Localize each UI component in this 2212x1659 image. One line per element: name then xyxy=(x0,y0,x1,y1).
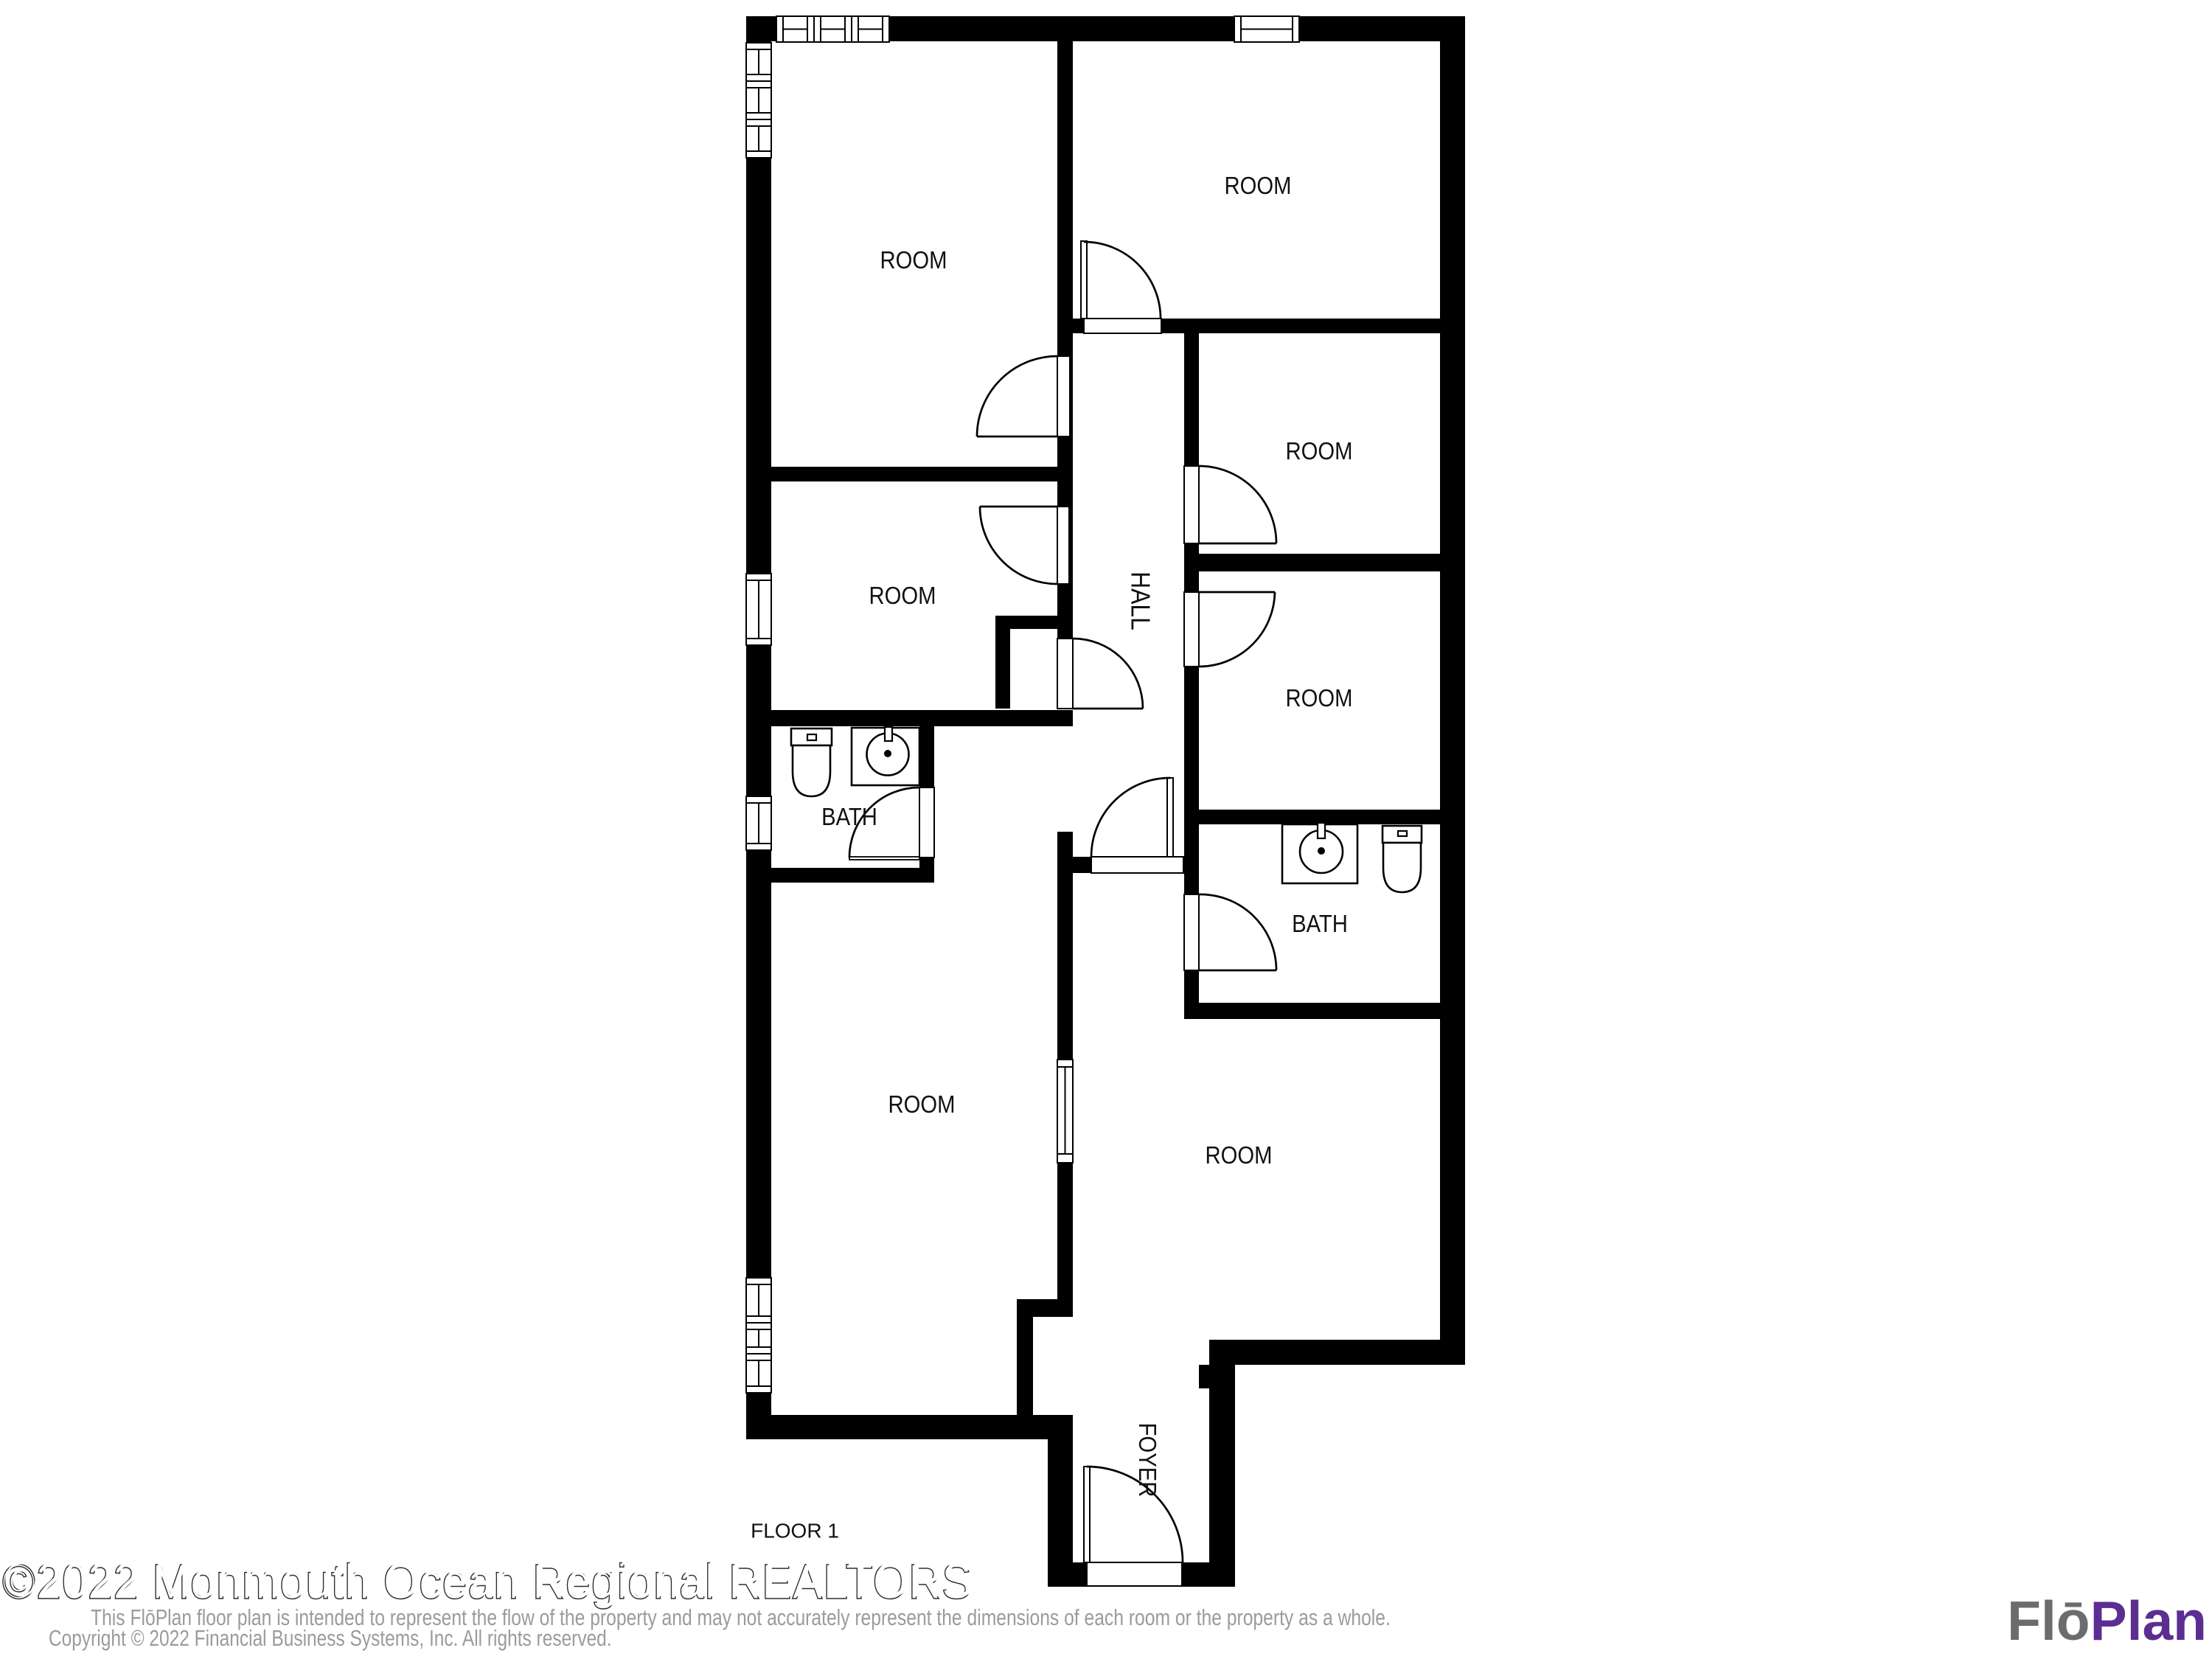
svg-text:BATH: BATH xyxy=(821,804,877,831)
svg-text:ROOM: ROOM xyxy=(869,582,936,610)
svg-text:HALL: HALL xyxy=(1125,571,1155,630)
svg-text:FlōPlan: FlōPlan xyxy=(2007,1590,2207,1652)
svg-text:Copyright © 2022 Financial Bus: Copyright © 2022 Financial Business Syst… xyxy=(49,1625,612,1650)
svg-text:ROOM: ROOM xyxy=(880,247,947,274)
svg-text:©2022 Monmouth Ocean Regional: ©2022 Monmouth Ocean Regional REALTORS xyxy=(4,1551,975,1607)
svg-text:ROOM: ROOM xyxy=(1286,438,1353,465)
svg-text:BATH: BATH xyxy=(1292,911,1348,938)
svg-text:FOYER: FOYER xyxy=(1133,1423,1161,1498)
svg-text:ROOM: ROOM xyxy=(1286,685,1353,712)
svg-text:ROOM: ROOM xyxy=(1206,1142,1273,1169)
svg-text:ROOM: ROOM xyxy=(1225,173,1292,200)
svg-text:FLOOR 1: FLOOR 1 xyxy=(751,1520,839,1543)
svg-text:ROOM: ROOM xyxy=(888,1091,956,1119)
